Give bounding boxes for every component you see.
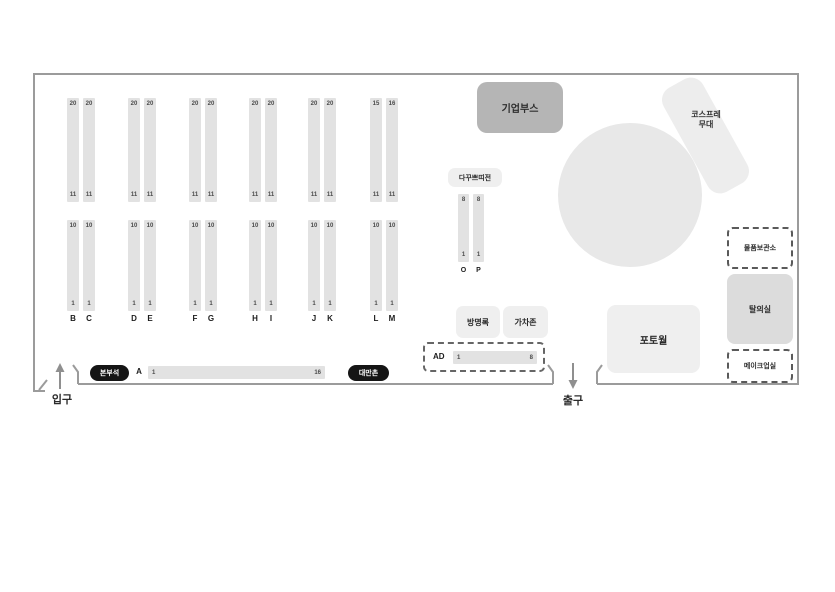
booth-column-k: 20 11 10 1 K [324,98,336,330]
booth-strip: 20 11 [324,98,336,202]
booth-strip: 10 1 [265,220,277,311]
booth-column-p: 8 1 P [473,194,484,278]
map-walls [0,0,835,592]
booth-number: 20 [249,101,261,108]
taiwan-badge: 대만촌 [348,365,389,381]
booth-number: 11 [370,192,382,199]
booth-number: 11 [386,192,398,199]
booth-row-letter: D [128,314,140,323]
booth-strip: 20 11 [308,98,320,202]
booth-number: 11 [324,192,336,199]
booth-number: 10 [128,223,140,230]
booth-column-f: 20 11 10 1 F [189,98,201,330]
booth-column-d: 20 11 10 1 D [128,98,140,330]
booth-number: 10 [370,223,382,230]
booth-row-letter: H [249,314,261,323]
gacha-zone-area: 가차존 [503,306,548,338]
gacha-zone-label: 가차존 [514,317,536,328]
booth-number: 8 [473,197,484,204]
booth-column-o: 8 1 O [458,194,469,278]
booth-row-letter: K [324,314,336,323]
guestbook-area: 방명록 [456,306,500,338]
ad-row-label: AD [433,352,445,361]
booth-strip: 20 11 [144,98,156,202]
booth-strip: 20 11 [189,98,201,202]
hq-badge: 본부석 [90,365,129,381]
booth-number: 16 [386,101,398,108]
corporate-booth-label: 기업부스 [502,100,539,115]
booth-number: 10 [308,223,320,230]
booth-strip: 10 1 [386,220,398,311]
booth-row-letter: C [83,314,95,323]
cosplay-stage-label: 코스프레 무대 [678,110,734,130]
booth-strip: 20 11 [128,98,140,202]
guestbook-label: 방명록 [467,317,489,328]
booth-number: 11 [144,192,156,199]
booth-row-letter: I [265,314,277,323]
booth-strip: 10 1 [128,220,140,311]
booth-strip: 15 11 [370,98,382,202]
booth-number: 8 [458,197,469,204]
booth-number: 10 [67,223,79,230]
booth-strip: 10 1 [67,220,79,311]
booth-strip: 20 11 [67,98,79,202]
booth-number: 11 [67,192,79,199]
entrance-corner-flick [39,380,47,390]
booth-number: 20 [324,101,336,108]
booth-number: 1 [67,301,79,308]
booth-row-letter: J [308,314,320,323]
booth-number: 1 [205,301,217,308]
entrance-label: 입구 [48,391,76,407]
booth-row-letter: M [386,314,398,323]
booth-number: 11 [205,192,217,199]
hq-badge-label: 본부석 [100,368,119,378]
booth-number: 1 [386,301,398,308]
dakku-section-label: 다꾸쁘띠전 [459,173,491,183]
booth-number: 20 [67,101,79,108]
booth-number: 10 [205,223,217,230]
booth-number: 20 [128,101,140,108]
exit-door-mark-right [597,365,602,384]
booth-number: 1 [128,301,140,308]
booth-column-b: 20 11 10 1 B [67,98,79,330]
corporate-booth-area: 기업부스 [477,82,563,133]
booth-strip: 20 11 [265,98,277,202]
booth-strip: 10 1 [144,220,156,311]
booth-number: 1 [458,252,469,259]
entrance-arrow-icon [56,363,65,389]
booth-strip: 10 1 [205,220,217,311]
booth-number: 11 [128,192,140,199]
booth-strip: 10 1 [308,220,320,311]
booth-strip: 8 1 [473,194,484,262]
makeup-room-area: 메이크업실 [727,349,793,383]
venue-floor-map: 20 11 10 1 B 20 11 10 1 C 20 11 10 1 D [0,0,835,592]
booth-column-j: 20 11 10 1 J [308,98,320,330]
exit-label: 출구 [559,392,587,408]
booth-number: 1 [473,252,484,259]
booth-number: 11 [83,192,95,199]
storage-room-area: 물품보관소 [727,227,793,269]
booth-number: 20 [265,101,277,108]
booth-column-i: 20 11 10 1 I [265,98,277,330]
booth-column-e: 20 11 10 1 E [144,98,156,330]
booth-number: 20 [189,101,201,108]
booth-strip: 16 11 [386,98,398,202]
booth-number: 11 [189,192,201,199]
entrance-door-mark [73,365,78,384]
photo-wall-area: 포토월 [607,305,700,373]
booth-row-letter: L [370,314,382,323]
booth-number: 10 [83,223,95,230]
booth-strip: 10 1 [83,220,95,311]
booth-row-letter: G [205,314,217,323]
booth-column-l: 15 11 10 1 L [370,98,382,330]
booth-number: 20 [144,101,156,108]
row-a-strip: 1 16 [148,366,325,379]
booth-number: 11 [249,192,261,199]
booth-number: 10 [324,223,336,230]
booth-number: 1 [457,351,460,364]
makeup-room-label: 메이크업실 [744,361,776,371]
row-a-letter: A [133,367,145,376]
booth-strip: 20 11 [249,98,261,202]
booth-number: 10 [265,223,277,230]
booth-column-c: 20 11 10 1 C [83,98,95,330]
booth-strip: 10 1 [249,220,261,311]
booth-strip: 8 1 [458,194,469,262]
cosplay-stage-label-line1: 코스프레 [678,110,734,120]
booth-number: 15 [370,101,382,108]
booth-number: 10 [144,223,156,230]
dakku-section-label-box: 다꾸쁘띠전 [448,168,502,187]
booth-number: 1 [370,301,382,308]
booth-number: 1 [308,301,320,308]
booth-row-letter: P [473,267,484,274]
exit-door-mark-left [548,365,553,384]
booth-number: 10 [249,223,261,230]
booth-number: 1 [265,301,277,308]
ad-row-area: AD 1 8 [423,342,545,372]
booth-column-g: 20 11 10 1 G [205,98,217,330]
central-circle-area [558,123,702,267]
changing-room-label: 탈의실 [749,304,771,315]
booth-number: 1 [144,301,156,308]
booth-number: 20 [308,101,320,108]
booth-number: 11 [308,192,320,199]
booth-number: 8 [530,351,533,364]
booth-row-letter: E [144,314,156,323]
booth-number: 1 [83,301,95,308]
booth-number: 1 [189,301,201,308]
booth-strip: 20 11 [205,98,217,202]
booth-number: 1 [249,301,261,308]
booth-number: 16 [314,366,321,379]
booth-number: 1 [152,366,155,379]
taiwan-badge-label: 대만촌 [359,368,378,378]
storage-room-label: 물품보관소 [744,243,776,253]
booth-strip: 10 1 [324,220,336,311]
ad-row-strip: 1 8 [453,351,537,364]
photo-wall-label: 포토월 [640,332,668,347]
booth-strip: 10 1 [189,220,201,311]
booth-number: 20 [83,101,95,108]
changing-room-area: 탈의실 [727,274,793,344]
booth-row-letter: B [67,314,79,323]
booth-number: 11 [265,192,277,199]
booth-number: 10 [386,223,398,230]
booth-row-letter: F [189,314,201,323]
booth-strip: 10 1 [370,220,382,311]
booth-row-letter: O [458,267,469,274]
exit-arrow-icon [569,363,578,389]
booth-strip: 20 11 [83,98,95,202]
booth-column-m: 16 11 10 1 M [386,98,398,330]
booth-number: 10 [189,223,201,230]
booth-column-h: 20 11 10 1 H [249,98,261,330]
booth-number: 1 [324,301,336,308]
cosplay-stage-label-line2: 무대 [678,120,734,130]
booth-number: 20 [205,101,217,108]
